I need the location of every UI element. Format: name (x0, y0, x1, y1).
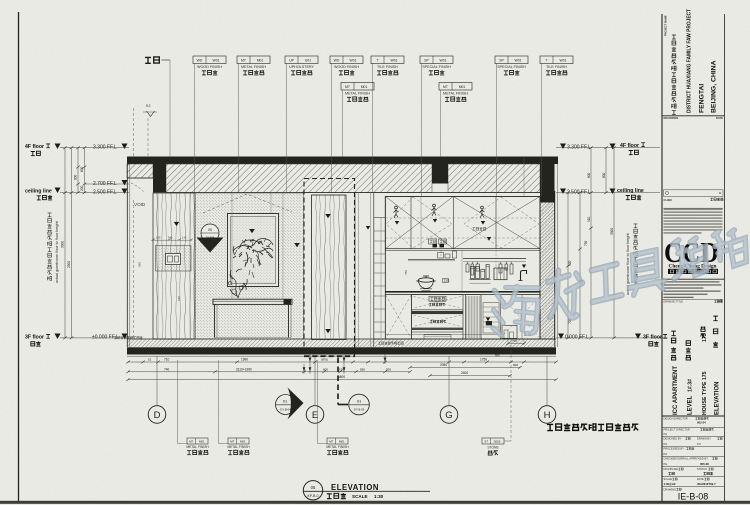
svg-text:SPECIAL FINISH: SPECIAL FINISH (422, 65, 451, 69)
svg-text:550: 550 (386, 367, 391, 371)
svg-text:W01: W01 (515, 58, 522, 62)
svg-text:MT: MT (443, 85, 448, 89)
svg-text:140: 140 (156, 236, 161, 240)
svg-text:4F floor: 4F floor (25, 144, 44, 150)
svg-text:800: 800 (587, 172, 591, 178)
svg-text:750: 750 (584, 240, 588, 246)
svg-text:METAL FINISH: METAL FINISH (326, 445, 349, 449)
svg-text:2050: 2050 (440, 363, 447, 367)
svg-text:DRAWN BY: DRAWN BY (697, 437, 711, 441)
svg-text:3110+1990: 3110+1990 (236, 367, 252, 371)
svg-text:DATE: DATE (716, 116, 723, 120)
svg-text:950: 950 (495, 353, 500, 357)
svg-text:180: 180 (177, 296, 181, 301)
svg-text:T: T (376, 58, 378, 62)
svg-text:600: 600 (323, 367, 328, 371)
svg-text:DESIGN DIRECTOR: DESIGN DIRECTOR (664, 417, 688, 421)
svg-text:UP: UP (289, 58, 294, 62)
svg-text:15: 15 (148, 358, 152, 362)
svg-text:01: 01 (283, 399, 288, 404)
svg-text:800: 800 (602, 172, 606, 178)
svg-text:W01: W01 (391, 58, 398, 62)
svg-text:H: H (544, 410, 551, 421)
svg-text:SP: SP (424, 58, 429, 62)
svg-text:800: 800 (74, 174, 78, 180)
svg-text:750: 750 (404, 270, 408, 275)
svg-text:3F floor: 3F floor (25, 335, 44, 341)
svg-text:M01: M01 (361, 85, 368, 89)
svg-text:DATE: DATE (697, 477, 704, 481)
svg-text:UPHOLSTERY: UPHOLSTERY (289, 65, 314, 69)
svg-text:actual guestroom floor to floo: actual guestroom floor to floor height (55, 220, 59, 283)
svg-text:REVISIONS: REVISIONS (664, 116, 679, 120)
svg-text:MT: MT (189, 439, 193, 443)
svg-text:PH: PH (664, 432, 668, 436)
svg-text:DISTRICT HUAXIANG FAMILY FAW P: DISTRICT HUAXIANG FAMILY FAW PROJECT (687, 9, 693, 113)
svg-text:540: 540 (168, 236, 173, 240)
svg-text:6600: 6600 (338, 375, 345, 379)
svg-text:FENGTAI: FENGTAI (699, 84, 706, 113)
svg-text:IE-B-08: IE-B-08 (678, 491, 709, 501)
svg-text:SP: SP (499, 58, 504, 62)
svg-text:E: E (312, 410, 318, 421)
svg-text:3300: 3300 (61, 241, 65, 248)
svg-text:U01: U01 (305, 58, 311, 62)
svg-text:140: 140 (182, 236, 187, 240)
svg-text:3F floor: 3F floor (643, 335, 662, 341)
svg-text:2.500 FF.L: 2.500 FF.L (567, 189, 591, 195)
svg-text:PH: PH (664, 442, 668, 446)
svg-text:CLIEN: CLIEN (664, 198, 672, 202)
svg-text:MT: MT (345, 85, 350, 89)
svg-text:WD: WD (334, 58, 340, 62)
svg-text:3300: 3300 (610, 228, 614, 235)
svg-text:METAL FINISH: METAL FINISH (345, 92, 370, 96)
svg-text:600: 600 (80, 166, 84, 172)
svg-text:DY-B-09: DY-B-09 (354, 407, 365, 411)
svg-text:M01: M01 (459, 85, 466, 89)
svg-text:9.2: 9.2 (146, 104, 151, 108)
svg-text:M01: M01 (240, 439, 246, 443)
svg-text:2400: 2400 (461, 371, 468, 375)
svg-text:320: 320 (568, 260, 572, 266)
svg-text:700: 700 (512, 339, 517, 343)
svg-text:05: 05 (311, 485, 316, 490)
svg-text:280: 280 (138, 262, 142, 267)
svg-text:740: 740 (164, 367, 170, 371)
svg-text:910: 910 (587, 216, 591, 222)
svg-text:METAL FINISH: METAL FINISH (241, 65, 266, 69)
svg-text:T: T (545, 58, 547, 62)
svg-text:STATUS: STATUS (697, 467, 707, 471)
svg-text:W01: W01 (213, 58, 220, 62)
svg-text:DRAWING TITLE: DRAWING TITLE (664, 301, 684, 304)
svg-text:M01: M01 (257, 58, 264, 62)
svg-text:600: 600 (513, 363, 518, 367)
svg-text:ceiling line: ceiling line (617, 188, 644, 194)
svg-text:TILE FINISH: TILE FINISH (546, 65, 567, 69)
svg-text:(870): (870) (321, 358, 328, 362)
svg-text:ceiling line: ceiling line (25, 188, 52, 194)
svg-text:45A2616T09-7: 45A2616T09-7 (697, 482, 716, 486)
svg-text:1750: 1750 (480, 358, 487, 362)
svg-text:ICC APARTMENT: ICC APARTMENT (673, 366, 679, 415)
svg-text:1990: 1990 (241, 358, 248, 362)
svg-text:G: G (445, 410, 452, 421)
svg-text:M01: M01 (339, 439, 345, 443)
svg-text:200: 200 (80, 185, 84, 191)
svg-text:WD: WD (197, 58, 203, 62)
svg-text:PH: PH (664, 452, 668, 456)
svg-text:MT: MT (230, 439, 234, 443)
svg-text:CHECKED/OVERALL APPROVED BY: CHECKED/OVERALL APPROVED BY (664, 457, 709, 461)
svg-text:MT: MT (241, 58, 246, 62)
svg-text:PH: PH (664, 462, 668, 466)
svg-text:01: 01 (357, 399, 362, 404)
svg-text:SPECIAL FINISH: SPECIAL FINISH (497, 65, 526, 69)
svg-text:SCALE: SCALE (664, 477, 673, 481)
svg-text:ST: ST (484, 439, 488, 443)
svg-text:DESIGNED BY: DESIGNED BY (664, 437, 682, 441)
svg-text:PROCESSED BY: PROCESSED BY (664, 447, 685, 451)
svg-text:STONE: STONE (487, 446, 499, 450)
svg-text:W01: W01 (440, 58, 447, 62)
svg-text:DY-B-04: DY-B-04 (280, 407, 291, 411)
svg-text:LEVEL: LEVEL (688, 395, 694, 415)
svg-text:002-04: 002-04 (697, 421, 706, 425)
svg-text:ELEVATION: ELEVATION (715, 382, 721, 415)
svg-text:W01: W01 (560, 58, 567, 62)
svg-text:2500: 2500 (67, 261, 71, 268)
svg-text:VOID: VOID (134, 202, 146, 207)
svg-text:DRAWING: DRAWING (664, 487, 676, 491)
svg-text:METAL FINISH: METAL FINISH (443, 92, 468, 96)
svg-text:PROJECT DIRECTOR: PROJECT DIRECTOR (664, 428, 690, 432)
svg-text:METAL FINISH: METAL FINISH (186, 445, 209, 449)
svg-text:WOOD FINISH: WOOD FINISH (197, 65, 222, 69)
svg-text:4F floor: 4F floor (620, 143, 639, 149)
svg-text:BEIJING, CHINA: BEIJING, CHINA (711, 60, 718, 113)
svg-text:1#.3#: 1#.3# (688, 379, 694, 392)
svg-text:S005: S005 (494, 439, 501, 443)
svg-text:PH: PH (697, 442, 701, 446)
svg-text:005-08: 005-08 (700, 462, 709, 466)
svg-text:PROJECT NAME: PROJECT NAME (664, 15, 668, 36)
svg-text:WOOD FINISH: WOOD FINISH (334, 65, 359, 69)
svg-text:MT: MT (329, 439, 333, 443)
svg-text:METAL FINISH: METAL FINISH (227, 445, 250, 449)
svg-text:DISCIPLINE: DISCIPLINE (664, 467, 679, 471)
svg-text:1:30: 1:30 (374, 494, 384, 499)
svg-text:550: 550 (360, 367, 365, 371)
svg-text:M01: M01 (199, 439, 205, 443)
svg-text:1:30@A2: 1:30@A2 (664, 482, 676, 486)
svg-text:KP-B-0: KP-B-0 (308, 494, 319, 498)
svg-text:SCALE: SCALE (352, 494, 368, 499)
svg-text:ELEVATION: ELEVATION (331, 483, 379, 492)
svg-text:D: D (154, 410, 161, 421)
svg-text:2.500 FF.L: 2.500 FF.L (93, 189, 117, 195)
svg-text:W01: W01 (350, 58, 357, 62)
svg-text:TILE FINISH: TILE FINISH (377, 65, 398, 69)
svg-text:05: 05 (208, 228, 212, 232)
svg-text:710: 710 (164, 358, 170, 362)
svg-text:HOUSE TYPE 175: HOUSE TYPE 175 (702, 371, 708, 415)
